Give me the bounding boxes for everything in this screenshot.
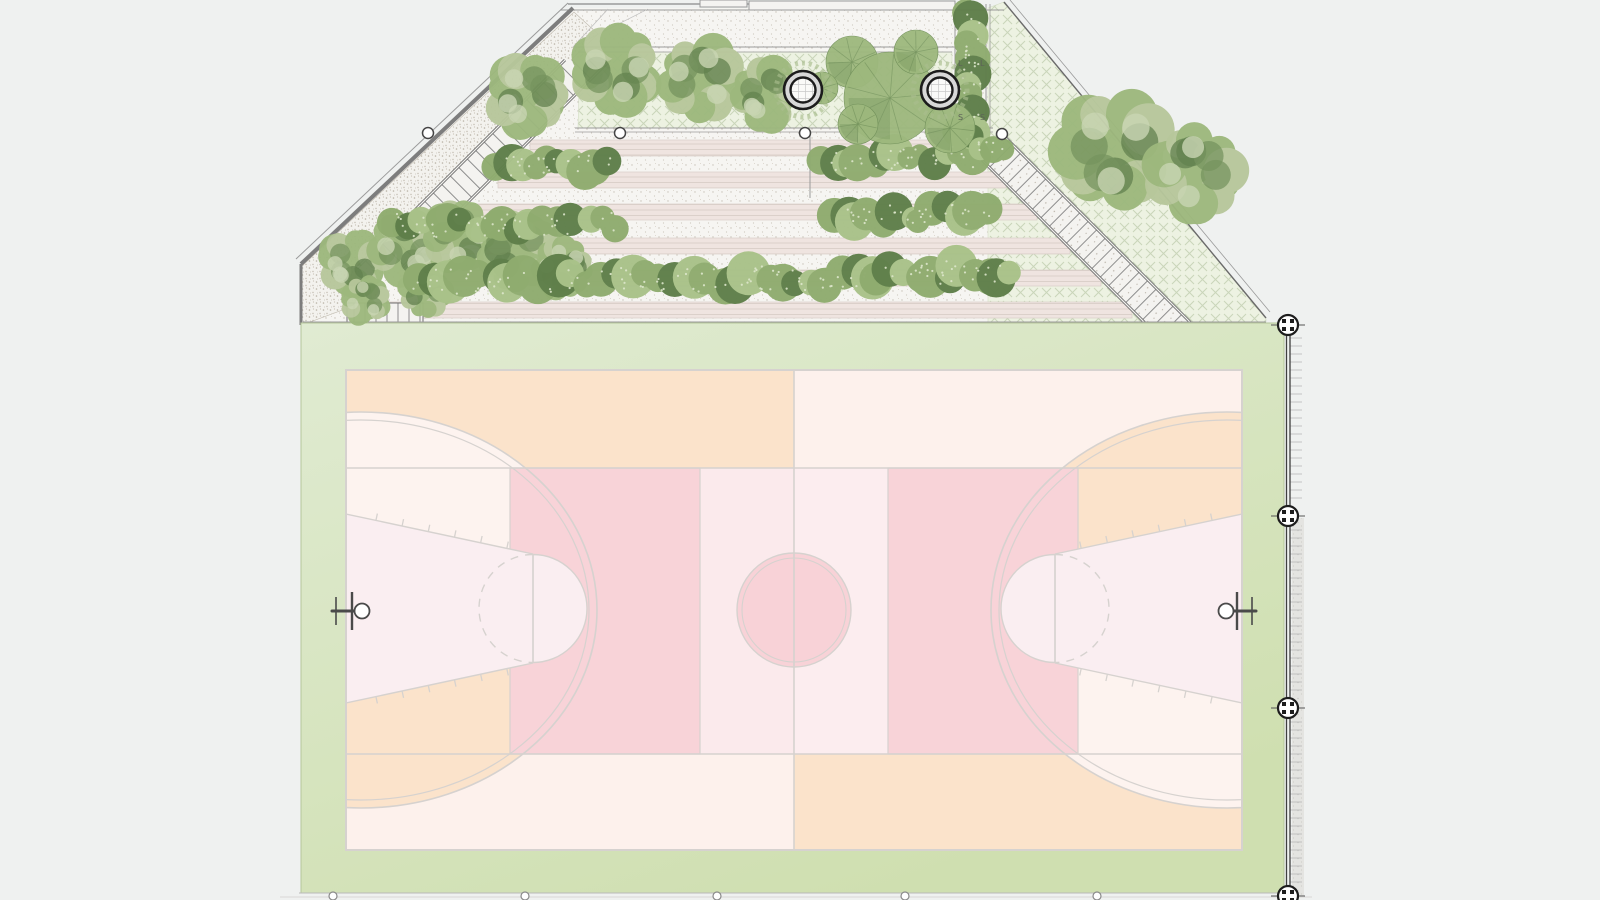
- round-tree-canopy: [838, 104, 878, 144]
- tree-planter: [776, 63, 830, 117]
- planter-wall: [749, 1, 955, 10]
- perimeter-node: [901, 892, 909, 900]
- perimeter-node: [521, 892, 529, 900]
- perimeter-node: [329, 892, 337, 900]
- perimeter-node: [1093, 892, 1101, 900]
- landscape-site-plan: LLSS: [0, 0, 1600, 900]
- perimeter-node: [713, 892, 721, 900]
- path-node: [423, 128, 434, 139]
- plant-tag-label: L: [958, 59, 963, 68]
- plant-tag-label: S: [980, 113, 985, 122]
- path-node: [800, 128, 811, 139]
- terrace-deck-band: [368, 302, 1132, 318]
- planter-wall: [700, 0, 747, 7]
- path-node: [997, 129, 1008, 140]
- round-tree-canopy: [925, 103, 975, 153]
- plant-tag-label: L: [980, 59, 985, 68]
- tree-planter: [913, 63, 967, 117]
- round-tree-canopy: [894, 30, 938, 74]
- path-node: [615, 128, 626, 139]
- site-plan-stage: LLSS: [0, 0, 1600, 900]
- plant-tag-label: S: [958, 113, 963, 122]
